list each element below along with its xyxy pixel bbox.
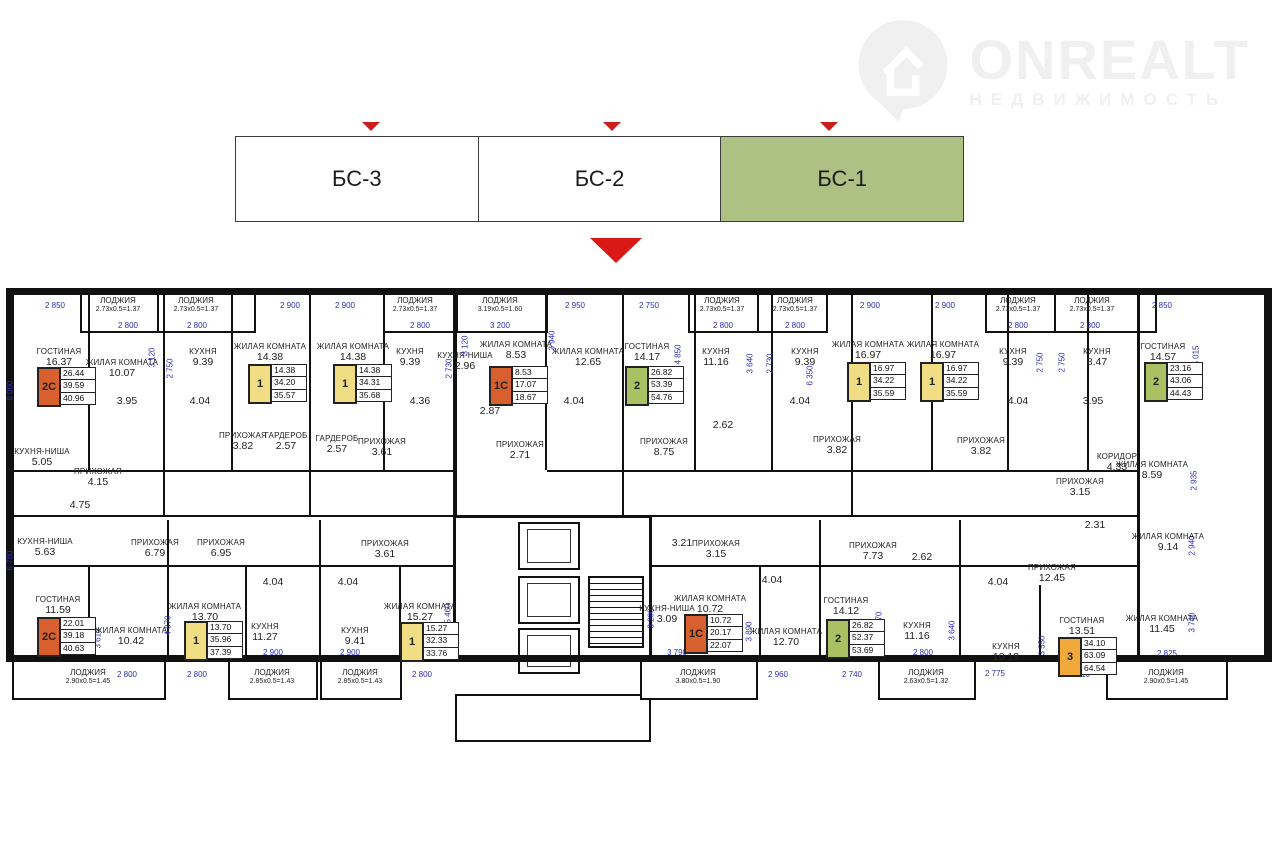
room-area: 4.04 <box>724 574 820 586</box>
room-label: ПРИХОЖАЯ2.71 <box>472 440 568 461</box>
apartment-areas: 13.7035.9637.39 <box>207 621 243 661</box>
apartment-areas: 26.8252.3753.69 <box>849 619 885 659</box>
room-area: 3.82 <box>933 445 1029 457</box>
dimension-label: 2 750 <box>619 301 679 310</box>
loggia-label: ЛОДЖИЯ3.19х0.5=1.60 <box>452 296 548 314</box>
dimension-label: 2 900 <box>243 648 303 657</box>
room-label: ЖИЛАЯ КОМНАТА10.42 <box>83 626 179 647</box>
apartment-area-value: 53.39 <box>648 378 684 391</box>
apartment-badge: 116.9734.2235.59 <box>920 362 979 402</box>
apartment-area-value: 35.59 <box>870 387 906 400</box>
room-name: ПРИХОЖАЯ <box>173 538 269 547</box>
loggia-label: ЛОДЖИЯ2.85х0.5=1.43 <box>312 668 408 686</box>
apartment-area-value: 10.72 <box>707 614 743 627</box>
apartment-badge: 2С26.4439.5940.96 <box>37 367 96 407</box>
apartment-areas: 15.2732.3333.76 <box>423 622 459 662</box>
room-area: 4.15 <box>50 476 146 488</box>
apartment-area-value: 44.43 <box>1167 387 1203 400</box>
dimension-label: 2 900 <box>320 648 380 657</box>
loggia-dimensions: 3.80х0.5=1.90 <box>650 677 746 686</box>
dimension-label: 2 740 <box>822 670 882 679</box>
apartment-area-value: 22.01 <box>60 617 96 630</box>
entrance-vestibule <box>455 694 651 742</box>
room-label: ПРИХОЖАЯ8.75 <box>616 437 712 458</box>
room-label: ЖИЛАЯ КОМНАТА8.59 <box>1104 460 1200 481</box>
room-label: ПРИХОЖАЯ6.95 <box>173 538 269 559</box>
loggia-name: ЛОДЖИЯ <box>148 296 244 305</box>
wall-segment <box>309 295 311 515</box>
room-label: КУХНЯ-НИША5.63 <box>0 537 93 558</box>
apartment-area-value: 17.07 <box>512 378 548 391</box>
loggia-name: ЛОДЖИЯ <box>40 668 136 677</box>
loggia-label: ЛОДЖИЯ2.90х0.5=1.45 <box>40 668 136 686</box>
room-area: 4.04 <box>752 395 848 407</box>
loggia-dimensions: 2.85х0.5=1.43 <box>224 677 320 686</box>
apartment-type: 1 <box>847 362 871 402</box>
apartment-area-value: 20.17 <box>707 626 743 639</box>
room-name: ЖИЛАЯ КОМНАТА <box>1114 614 1210 623</box>
apartment-area-value: 34.20 <box>271 376 307 389</box>
apartment-area-value: 43.06 <box>1167 374 1203 387</box>
loggia-dimensions: 2.85х0.5=1.43 <box>312 677 408 686</box>
loggia-dimensions: 2.90х0.5=1.45 <box>1118 677 1214 686</box>
room-area: 2.62 <box>874 551 970 563</box>
room-area: 4.04 <box>300 576 396 588</box>
apartment-area-value: 64.54 <box>1081 662 1117 675</box>
room-name: ПРИХОЖАЯ <box>616 437 712 446</box>
loggia-name: ЛОДЖИЯ <box>878 668 974 677</box>
room-label: 4.04 <box>752 395 848 407</box>
room-label: ПРИХОЖАЯ4.15 <box>50 467 146 488</box>
apartment-type: 2 <box>826 619 850 659</box>
wall-segment <box>624 515 1137 517</box>
apartment-area-value: 34.22 <box>870 374 906 387</box>
room-label: ГОСТИНАЯ11.59 <box>10 595 106 616</box>
loggia-dimensions: 2.73х0.5=1.37 <box>1044 305 1140 314</box>
room-label: ПРИХОЖАЯ3.82 <box>933 436 1029 457</box>
room-label: ЖИЛАЯ КОМНАТА15.27 <box>372 602 468 623</box>
apartment-area-value: 34.22 <box>943 374 979 387</box>
room-area: 9.41 <box>307 635 403 647</box>
room-name: КУХНЯ <box>965 347 1061 356</box>
loggia-label: ЛОДЖИЯ2.90х0.5=1.45 <box>1118 668 1214 686</box>
room-name: ЖИЛАЯ КОМНАТА <box>222 342 318 351</box>
room-label: КУХНЯ9.39 <box>965 347 1061 368</box>
room-label: КУХНЯ11.16 <box>668 347 764 368</box>
room-area: 3.82 <box>789 444 885 456</box>
dimension-label: 2 950 <box>545 301 605 310</box>
apartment-type: 1 <box>184 621 208 661</box>
room-name: ЖИЛАЯ КОМНАТА <box>157 602 253 611</box>
wall-segment <box>1264 288 1272 662</box>
apartment-type: 1 <box>400 622 424 662</box>
apartment-areas: 23.1643.0644.43 <box>1167 362 1203 402</box>
floor-plan: ГОСТИНАЯ16.37ЖИЛАЯ КОМНАТА10.07КУХНЯ9.39… <box>0 0 1280 865</box>
apartment-area-value: 34.31 <box>356 376 392 389</box>
elevator-icon <box>518 628 580 674</box>
room-area: 14.12 <box>798 605 894 617</box>
room-label: 4.04 <box>152 395 248 407</box>
dimension-label: 2 800 <box>167 670 227 679</box>
apartment-badge: 334.1063.0964.54 <box>1058 637 1117 677</box>
loggia-label: ЛОДЖИЯ2.85х0.5=1.43 <box>224 668 320 686</box>
apartment-type: 1 <box>248 364 272 404</box>
apartment-type: 2 <box>1144 362 1168 402</box>
apartment-area-value: 33.76 <box>423 647 459 660</box>
apartment-area-value: 34.10 <box>1081 637 1117 650</box>
room-label: КУХНЯ-НИША5.05 <box>0 447 90 468</box>
room-label: КУХНЯ9.41 <box>307 626 403 647</box>
apartment-area-value: 63.09 <box>1081 649 1117 662</box>
apartment-badge: 113.7035.9637.39 <box>184 621 243 661</box>
room-name: ГОСТИНАЯ <box>798 596 894 605</box>
room-name: ПРИХОЖАЯ <box>334 437 430 446</box>
loggia-name: ЛОДЖИЯ <box>747 296 843 305</box>
room-name: ПРИХОЖАЯ <box>472 440 568 449</box>
dimension-label: 2 800 <box>765 321 825 330</box>
room-name: ПРИХОЖАЯ <box>933 436 1029 445</box>
loggia-label: ЛОДЖИЯ2.73х0.5=1.37 <box>148 296 244 314</box>
loggia-dimensions: 2.73х0.5=1.37 <box>148 305 244 314</box>
apartment-area-value: 23.16 <box>1167 362 1203 375</box>
apartment-badge: 2С22.0139.1840.63 <box>37 617 96 657</box>
apartment-badge: 226.8252.3753.69 <box>826 619 885 659</box>
dimension-label: 2 850 <box>1132 301 1192 310</box>
room-area: 5.63 <box>0 546 93 558</box>
dimension-label: 2 900 <box>315 301 375 310</box>
room-label: ЖИЛАЯ КОМНАТА11.45 <box>1114 614 1210 635</box>
wall-segment <box>851 295 853 515</box>
room-name: КУХНЯ-НИША <box>0 537 93 546</box>
room-name: ЖИЛАЯ КОМНАТА <box>1120 532 1216 541</box>
apartment-badge: 114.3834.3135.68 <box>333 364 392 404</box>
loggia-dimensions: 2.73х0.5=1.37 <box>747 305 843 314</box>
apartment-areas: 16.9734.2235.59 <box>943 362 979 402</box>
apartment-type: 1С <box>489 366 513 406</box>
room-label: ЖИЛАЯ КОМНАТА13.70 <box>157 602 253 623</box>
dimension-label: 2 900 <box>915 301 975 310</box>
apartment-areas: 26.4439.5940.96 <box>60 367 96 407</box>
room-area: 11.59 <box>10 604 106 616</box>
loggia-dimensions: 2.63х0.5=1.32 <box>878 677 974 686</box>
apartment-area-value: 40.63 <box>60 642 96 655</box>
loggia-name: ЛОДЖИЯ <box>224 668 320 677</box>
apartment-type: 2 <box>625 366 649 406</box>
apartment-type: 1 <box>920 362 944 402</box>
apartment-area-value: 35.68 <box>356 389 392 402</box>
room-name: КУХНЯ <box>307 626 403 635</box>
loggia-label: ЛОДЖИЯ2.73х0.5=1.37 <box>1044 296 1140 314</box>
apartment-area-value: 35.96 <box>207 633 243 646</box>
room-area: 3.61 <box>337 548 433 560</box>
room-name: ГОСТИНАЯ <box>1115 342 1211 351</box>
room-area: 11.45 <box>1114 623 1210 635</box>
apartment-badge: 114.3834.2035.57 <box>248 364 307 404</box>
room-area: 10.19 <box>958 651 1054 663</box>
dimension-label: 2 900 <box>840 301 900 310</box>
room-name: КУХНЯ-НИША <box>0 447 90 456</box>
room-label: 2.62 <box>675 419 771 431</box>
room-label: 4.04 <box>300 576 396 588</box>
room-area: 12.45 <box>1004 572 1100 584</box>
room-name: ЖИЛАЯ КОМНАТА <box>1104 460 1200 469</box>
dimension-label: 2 800 <box>893 648 953 657</box>
loggia-name: ЛОДЖИЯ <box>1118 668 1214 677</box>
room-label: ЖИЛАЯ КОМНАТА12.70 <box>738 627 834 648</box>
room-area: 3.61 <box>334 446 430 458</box>
apartment-badge: 116.9734.2235.59 <box>847 362 906 402</box>
room-label: 4.04 <box>724 574 820 586</box>
loggia-name: ЛОДЖИЯ <box>367 296 463 305</box>
apartment-type: 2С <box>37 617 61 657</box>
room-label: КУХНЯ10.19 <box>958 642 1054 663</box>
apartment-badge: 223.1643.0644.43 <box>1144 362 1203 402</box>
room-label: ЖИЛАЯ КОМНАТА10.72 <box>662 594 758 615</box>
dimension-label: 2 900 <box>260 301 320 310</box>
loggia-dimensions: 3.19х0.5=1.60 <box>452 305 548 314</box>
room-name: ГОСТИНАЯ <box>10 595 106 604</box>
wall-segment <box>14 565 454 567</box>
room-area: 2.71 <box>472 449 568 461</box>
room-area: 3.95 <box>1045 395 1141 407</box>
room-label: ГОСТИНАЯ14.57 <box>1115 342 1211 363</box>
apartment-area-value: 16.97 <box>943 362 979 375</box>
apartment-areas: 14.3834.2035.57 <box>271 364 307 404</box>
apartment-areas: 26.8253.3954.76 <box>648 366 684 406</box>
apartment-area-value: 14.38 <box>271 364 307 377</box>
loggia-name: ЛОДЖИЯ <box>452 296 548 305</box>
wall-segment <box>14 515 454 517</box>
apartment-area-value: 26.44 <box>60 367 96 380</box>
dimension-label: 2 800 <box>390 321 450 330</box>
elevator-icon <box>518 522 580 570</box>
room-name: ПРИХОЖАЯ <box>789 435 885 444</box>
apartment-area-value: 35.57 <box>271 389 307 402</box>
apartment-areas: 14.3834.3135.68 <box>356 364 392 404</box>
wall-segment <box>547 470 1137 472</box>
apartment-area-value: 18.67 <box>512 391 548 404</box>
apartment-type: 2С <box>37 367 61 407</box>
dimension-label: 2 800 <box>693 321 753 330</box>
dimension-label: 2 800 <box>988 321 1048 330</box>
dimension-label: 3 200 <box>470 321 530 330</box>
room-area: 3.15 <box>1032 486 1128 498</box>
room-name: ЖИЛАЯ КОМНАТА <box>738 627 834 636</box>
loggia-dimensions: 2.90х0.5=1.45 <box>40 677 136 686</box>
room-area: 2.31 <box>1047 519 1143 531</box>
apartment-area-value: 13.70 <box>207 621 243 634</box>
room-name: ПРИХОЖАЯ <box>337 539 433 548</box>
apartment-area-value: 8.53 <box>512 366 548 379</box>
loggia-name: ЛОДЖИЯ <box>312 668 408 677</box>
apartment-area-value: 37.39 <box>207 646 243 659</box>
loggia-label: ЛОДЖИЯ2.73х0.5=1.37 <box>367 296 463 314</box>
room-area: 12.70 <box>738 636 834 648</box>
apartment-area-value: 32.33 <box>423 634 459 647</box>
room-area: 8.75 <box>616 446 712 458</box>
room-name: КУХНЯ <box>958 642 1054 651</box>
apartment-areas: 34.1063.0964.54 <box>1081 637 1117 677</box>
room-name: КУХНЯ <box>668 347 764 356</box>
apartment-type: 1 <box>333 364 357 404</box>
apartment-area-value: 54.76 <box>648 391 684 404</box>
room-name: ЖИЛАЯ КОМНАТА <box>83 626 179 635</box>
loggia-dimensions: 2.73х0.5=1.37 <box>367 305 463 314</box>
apartment-badge: 1С10.7220.1722.07 <box>684 614 743 654</box>
apartment-area-value: 52.37 <box>849 631 885 644</box>
dimension-label: 8 060 <box>6 361 15 421</box>
room-name: ПРИХОЖАЯ <box>668 539 764 548</box>
room-label: ПРИХОЖАЯ3.15 <box>668 539 764 560</box>
room-name: ПРИХОЖАЯ <box>825 541 921 550</box>
apartment-area-value: 35.59 <box>943 387 979 400</box>
room-label: 2.31 <box>1047 519 1143 531</box>
loggia-label: ЛОДЖИЯ2.73х0.5=1.37 <box>747 296 843 314</box>
room-area: 10.42 <box>83 635 179 647</box>
loggia-name: ЛОДЖИЯ <box>1044 296 1140 305</box>
apartment-area-value: 16.97 <box>870 362 906 375</box>
room-name: ЖИЛАЯ КОМНАТА <box>372 602 468 611</box>
apartment-areas: 8.5317.0718.67 <box>512 366 548 406</box>
wall-segment <box>6 288 1268 295</box>
room-area: 4.04 <box>152 395 248 407</box>
floor-plan-page: ONREALT НЕДВИЖИМОСТЬ БС-3 БС-2 БС-1 ГОСТ… <box>0 0 1280 865</box>
room-label: ЖИЛАЯ КОМНАТА9.14 <box>1120 532 1216 553</box>
loggia-label: ЛОДЖИЯ3.80х0.5=1.90 <box>650 668 746 686</box>
room-area: 8.59 <box>1104 469 1200 481</box>
room-label: 2.87 <box>442 405 538 417</box>
apartment-type: 3 <box>1058 637 1082 677</box>
room-area: 9.39 <box>965 356 1061 368</box>
dimension-label: 2 800 <box>1060 321 1120 330</box>
apartment-area-value: 15.27 <box>423 622 459 635</box>
room-name: ПРИХОЖАЯ <box>1004 563 1100 572</box>
elevator-icon <box>518 576 580 624</box>
apartment-badge: 1С8.5317.0718.67 <box>489 366 548 406</box>
room-name: ЖИЛАЯ КОМНАТА <box>662 594 758 603</box>
room-label: ПРИХОЖАЯ3.82 <box>789 435 885 456</box>
room-label: ПРИХОЖАЯ3.61 <box>337 539 433 560</box>
room-name: ГОСТИНАЯ <box>11 347 107 356</box>
room-area: 2.62 <box>675 419 771 431</box>
apartment-area-value: 26.82 <box>849 619 885 632</box>
room-area: 14.38 <box>222 351 318 363</box>
room-label: 2.62 <box>874 551 970 563</box>
apartment-type: 1С <box>684 614 708 654</box>
apartment-areas: 16.9734.2235.59 <box>870 362 906 402</box>
apartment-area-value: 39.59 <box>60 379 96 392</box>
apartment-badge: 226.8253.3954.76 <box>625 366 684 406</box>
dimension-label: 2 800 <box>167 321 227 330</box>
apartment-area-value: 22.07 <box>707 639 743 652</box>
loggia-label: ЛОДЖИЯ2.63х0.5=1.32 <box>878 668 974 686</box>
apartment-area-value: 26.82 <box>648 366 684 379</box>
apartment-areas: 22.0139.1840.63 <box>60 617 96 657</box>
apartment-area-value: 53.69 <box>849 644 885 657</box>
room-label: ГОСТИНАЯ14.12 <box>798 596 894 617</box>
loggia-name: ЛОДЖИЯ <box>650 668 746 677</box>
room-label: 3.95 <box>1045 395 1141 407</box>
room-area: 2.87 <box>442 405 538 417</box>
room-area: 3.15 <box>668 548 764 560</box>
dimension-label: 2 960 <box>748 670 808 679</box>
room-label: 4.75 <box>32 499 128 511</box>
apartment-area-value: 40.96 <box>60 392 96 405</box>
apartment-badge: 115.2732.3333.76 <box>400 622 459 662</box>
apartment-area-value: 14.38 <box>356 364 392 377</box>
room-label: ЖИЛАЯ КОМНАТА14.38 <box>222 342 318 363</box>
room-name: ПРИХОЖАЯ <box>50 467 146 476</box>
room-area: 6.95 <box>173 547 269 559</box>
apartment-area-value: 39.18 <box>60 629 96 642</box>
apartment-areas: 10.7220.1722.07 <box>707 614 743 654</box>
room-area: 9.14 <box>1120 541 1216 553</box>
room-area: 4.75 <box>32 499 128 511</box>
room-label: ПРИХОЖАЯ3.61 <box>334 437 430 458</box>
dimension-label: 2 775 <box>965 669 1025 678</box>
room-label: ПРИХОЖАЯ12.45 <box>1004 563 1100 584</box>
wall-segment <box>622 295 624 515</box>
